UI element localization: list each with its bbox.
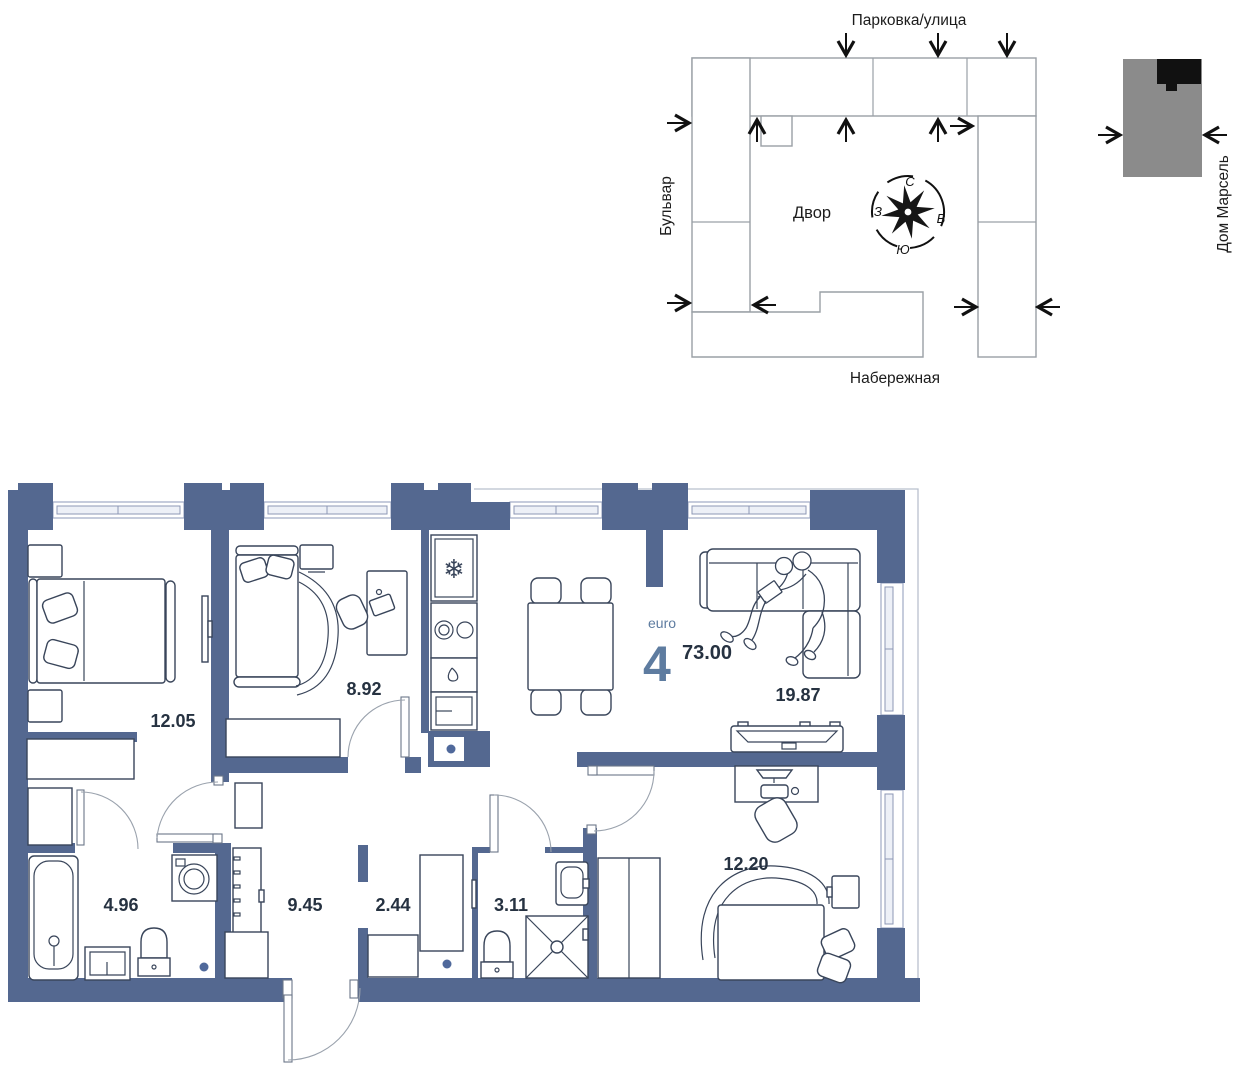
bottom-street-label: Набережная <box>850 370 940 387</box>
apartment-type-label: euro <box>648 615 676 631</box>
room-wardrobe: 2.44 <box>368 855 463 977</box>
hanger-rack-icon <box>368 935 418 977</box>
marsel-building-label: Дом Марсель <box>1215 155 1232 253</box>
floorplan-page: Двор С В Ю З <box>0 0 1251 1080</box>
tv-icon <box>300 545 333 572</box>
compass-east: В <box>937 211 946 226</box>
floorplan-drawing: Двор С В Ю З <box>0 0 1251 1080</box>
window-icon <box>510 502 602 518</box>
room-bedroom-main: 12.05 <box>28 545 212 731</box>
dining-table-icon <box>528 578 613 715</box>
compass: С В Ю З <box>862 166 954 258</box>
tv-icon <box>827 876 859 908</box>
tv-icon <box>202 596 212 662</box>
desk-icon <box>735 766 818 802</box>
door-bedroom-third <box>587 766 654 834</box>
shower-icon <box>526 916 588 978</box>
nightstand-icon <box>28 690 62 722</box>
left-street-label: Бульвар <box>658 176 675 236</box>
wardrobe-icon <box>226 719 340 757</box>
door-bathroom <box>77 790 138 849</box>
tv-console-icon <box>731 722 843 752</box>
wardrobe-icon <box>235 783 262 828</box>
hob-icon <box>431 603 477 658</box>
apartment-rooms-count: 4 <box>643 636 671 692</box>
room-living-kitchen: ❄ <box>431 535 860 752</box>
vanity-icon <box>85 947 130 980</box>
fridge-icon: ❄ <box>431 535 477 601</box>
room-shower: 3.11 <box>472 862 589 978</box>
site-plan: Двор С В Ю З <box>658 12 1232 387</box>
riser-dot <box>200 963 209 972</box>
marsel-building-icon <box>1123 59 1202 177</box>
door-bedroom-kids <box>348 697 409 757</box>
room-area-bedroom-kids: 8.92 <box>346 679 381 699</box>
room-area-bedroom-main: 12.05 <box>150 711 195 731</box>
compass-south: Ю <box>896 242 909 257</box>
room-area-living-kitchen: 19.87 <box>775 685 820 705</box>
double-bed-icon <box>29 579 175 683</box>
wardrobe-icon <box>225 932 268 978</box>
toilet-icon <box>138 928 170 976</box>
site-building-outline <box>692 58 1036 357</box>
riser-dot <box>443 960 452 969</box>
courtyard-label: Двор <box>793 204 831 222</box>
window-icon <box>53 502 184 518</box>
room-bedroom-third: 12.20 <box>598 766 859 984</box>
riser-dot <box>447 745 456 754</box>
bathtub-icon <box>29 856 78 980</box>
shelf-unit-icon <box>233 848 264 933</box>
kitchen-cabinet-icon <box>431 692 477 730</box>
hanger-rack-icon <box>420 855 463 951</box>
sink-icon <box>556 862 589 905</box>
snowflake-icon: ❄ <box>443 555 465 585</box>
window-icon <box>881 790 903 928</box>
nightstand-icon <box>28 545 62 577</box>
wardrobe-icon <box>27 739 134 779</box>
window-icon <box>688 502 810 518</box>
window-icon <box>264 502 391 518</box>
room-area-bathroom: 4.96 <box>103 895 138 915</box>
apartment-total-area: 73.00 <box>682 642 732 664</box>
compass-west: З <box>874 204 882 219</box>
desk-icon <box>367 571 407 655</box>
room-area-bedroom-third: 12.20 <box>723 854 768 874</box>
wardrobe-icon <box>28 788 72 845</box>
room-area-hallway: 9.45 <box>287 895 322 915</box>
window-icon <box>881 583 903 715</box>
top-street-label: Парковка/улица <box>852 12 967 29</box>
chair-icon <box>333 592 370 632</box>
kitchen-sink-icon <box>431 658 477 692</box>
washing-machine-icon <box>172 855 217 901</box>
door-corridor <box>157 776 223 843</box>
compass-north: С <box>905 174 915 189</box>
towel-rail-icon <box>472 880 476 908</box>
door-shower-room <box>490 795 551 852</box>
room-area-shower: 3.11 <box>494 895 528 915</box>
room-bedroom-kids: 8.92 <box>226 545 407 757</box>
room-area-wardrobe: 2.44 <box>375 895 410 915</box>
room-bathroom: 4.96 <box>29 855 217 980</box>
apartment-floorplan: 12.05 8.92 <box>8 483 920 1062</box>
toilet-icon <box>481 931 513 978</box>
door-entrance <box>283 980 360 1062</box>
